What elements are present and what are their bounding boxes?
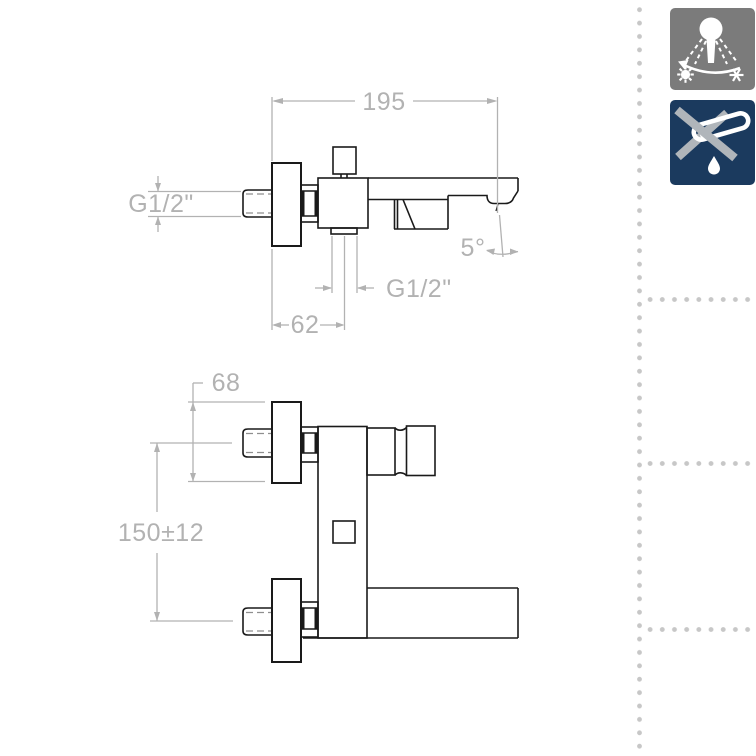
dotted-separator-vertical [635,3,644,753]
top-view-geometry [243,147,518,246]
dotted-separator-horizontal [644,459,756,468]
front-view-thread-dashes [246,434,271,632]
dim-outlet-thread-label: G1/2" [386,275,452,303]
catalog-page: 195 G1/2" 5° G1/2" 62 68 150±12 [0,0,756,756]
dotted-separator-horizontal [644,295,756,304]
front-view-dimensions [150,383,265,621]
shower-handle-icon [707,39,716,63]
shower-head-icon [700,18,723,41]
no-drip-spout-glyph [670,100,755,185]
hot-sun-icon [677,66,694,83]
dim-escutcheon-label: 68 [212,369,241,397]
dim-centers-label: 150±12 [118,519,204,547]
no-drip-spout-icon [670,100,755,185]
water-drop-icon [708,156,720,175]
dim-overall-depth-label: 195 [362,88,405,116]
dotted-separator-horizontal [644,625,756,634]
top-view-dimensions [148,97,518,330]
front-view-geometry [243,402,518,662]
dim-outlet-offset-label: 62 [291,311,320,339]
dim-inlet-thread-label: G1/2" [128,190,194,218]
shower-temperature-range-icon [670,8,755,90]
shower-temperature-range-glyph [670,8,755,90]
dim-spout-angle-label: 5° [461,234,486,262]
top-view-thread-dashes [246,194,271,213]
